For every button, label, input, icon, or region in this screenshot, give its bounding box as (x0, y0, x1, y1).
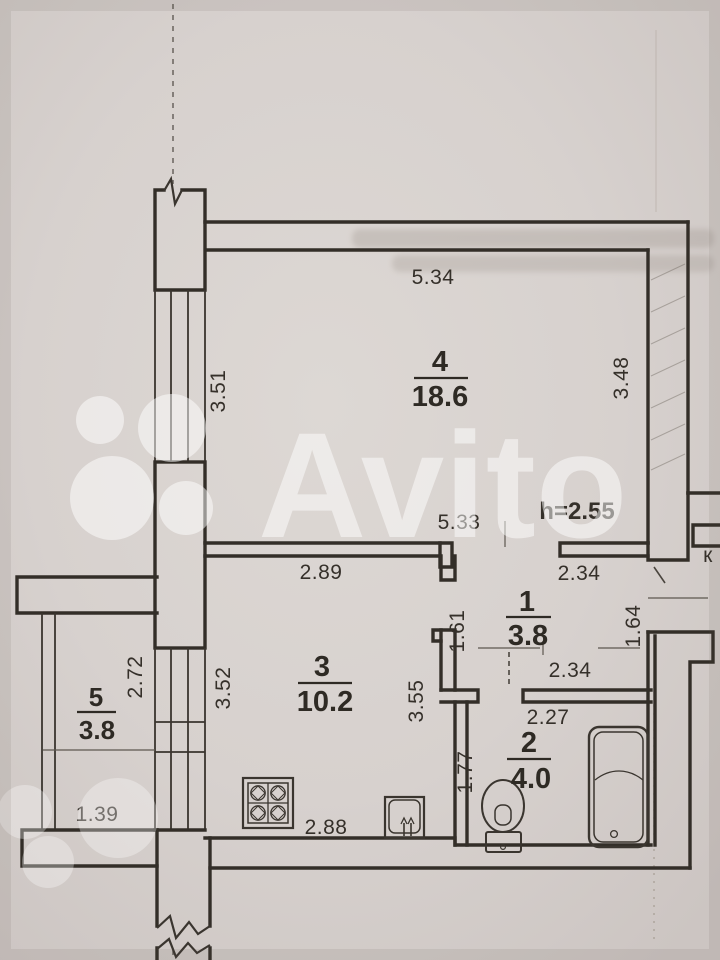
dim-hall-bottom: 2.34 (549, 659, 592, 682)
dim-hall-left: 1.61 (446, 610, 469, 653)
room5-area: 3.8 (79, 715, 115, 745)
floor-plan-photo: 5.34 3.51 3.48 4 18.6 5.33 h=2.55 2.34 1… (0, 0, 720, 960)
dim-room4-top: 5.34 (412, 266, 455, 289)
dim-room4-right: 3.48 (610, 357, 633, 400)
room3-area: 10.2 (297, 686, 353, 718)
dim-hall-right: 1.64 (622, 605, 645, 648)
dim-balcony-right: 2.72 (124, 656, 147, 699)
dim-kitchen-bottom: 2.88 (305, 816, 348, 839)
room1-area: 3.8 (508, 620, 548, 652)
dim-bath-top: 2.27 (527, 706, 570, 729)
room5-number: 5 (89, 682, 103, 712)
dim-kitchen-left: 3.52 (212, 667, 235, 710)
room2-number: 2 (521, 727, 537, 759)
dim-bath-left: 1.77 (454, 751, 477, 794)
avito-watermark-text: Avito (258, 401, 627, 569)
floor-plan-svg: 5.34 3.51 3.48 4 18.6 5.33 h=2.55 2.34 1… (0, 0, 720, 960)
dim-room4-left: 3.51 (207, 370, 230, 413)
room4-number: 4 (432, 346, 448, 378)
room1-number: 1 (519, 586, 535, 618)
dim-kitchen-right: 3.55 (405, 680, 428, 723)
room3-number: 3 (314, 651, 330, 683)
room2-area: 4.0 (511, 763, 551, 795)
